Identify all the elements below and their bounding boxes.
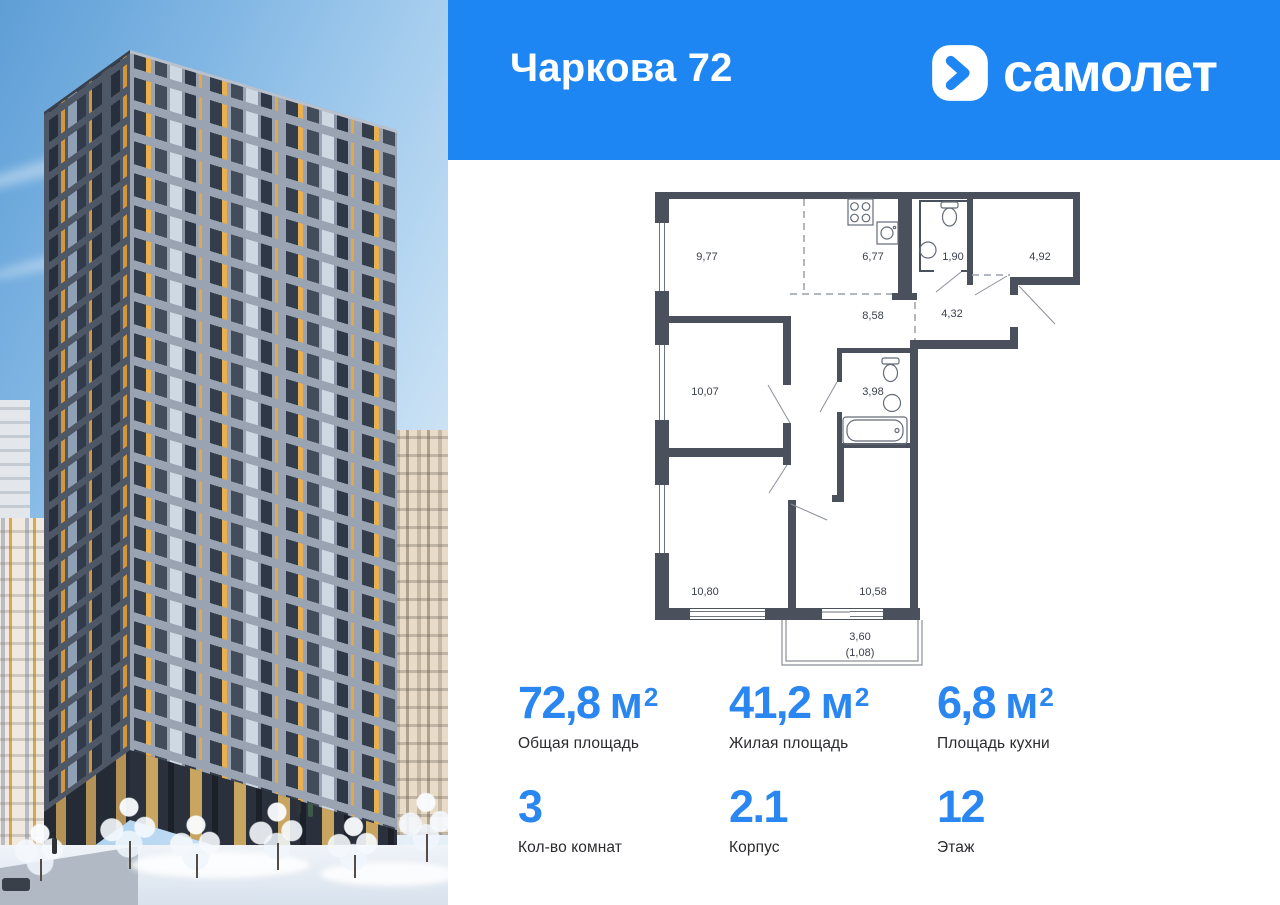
kitchen-sink-icon: [877, 222, 898, 244]
plan-windows: [657, 223, 883, 619]
stat-value: 3: [518, 784, 728, 829]
balcony-area-label: 3,60: [849, 631, 870, 643]
stat-label: Общая площадь: [518, 735, 728, 753]
stat-label: Кол-во комнат: [518, 839, 728, 857]
snowy-tree: [326, 814, 381, 884]
background-building: [388, 430, 448, 835]
building-photo: [0, 0, 448, 905]
stat-rooms-count: 3 Кол-во комнат: [518, 784, 728, 857]
room-area-label: 4,32: [941, 308, 962, 320]
room-area-label: 8,58: [862, 310, 883, 322]
stat-floor: 12 Этаж: [937, 784, 1147, 857]
snowy-tree: [14, 822, 66, 886]
pedestrian: [308, 803, 313, 817]
room-area-label: 10,58: [859, 586, 887, 598]
stat-label: Этаж: [937, 839, 1147, 857]
snowy-tree: [168, 812, 224, 884]
stat-label: Жилая площадь: [729, 735, 939, 753]
stat-value: 2.1: [729, 784, 939, 829]
pedestrian: [52, 838, 57, 854]
room-area-label: 10,07: [691, 386, 719, 398]
sink-icon: [920, 242, 936, 258]
stat-building: 2.1 Корпус: [729, 784, 939, 857]
room-area-label: 3,98: [862, 386, 883, 398]
room-area-label: 9,77: [696, 251, 717, 263]
stat-label: Площадь кухни: [937, 735, 1147, 753]
brand-name: самолет: [1003, 42, 1217, 104]
stat-total-area: 72,8м2 Общая площадь: [518, 680, 728, 753]
room-area-label: 4,92: [1029, 251, 1050, 263]
room-area-label: 1,90: [942, 251, 963, 263]
toilet-icon: [941, 202, 958, 208]
stat-living-area: 41,2м2 Жилая площадь: [729, 680, 939, 753]
stat-value: 41,2м2: [729, 680, 939, 725]
samolet-logo-icon: [931, 44, 989, 102]
pedestrian: [296, 800, 301, 814]
car: [2, 878, 30, 891]
stat-label: Корпус: [729, 839, 939, 857]
tower-side-facade: [44, 50, 130, 874]
stat-value: 6,8м2: [937, 680, 1147, 725]
stat-kitchen-area: 6,8м2 Площадь кухни: [937, 680, 1147, 753]
stat-value: 72,8м2: [518, 680, 728, 725]
room-area-label: 10,80: [691, 586, 719, 598]
stat-value: 12: [937, 784, 1147, 829]
header-banner: Чаркова 72 самолет: [448, 0, 1280, 160]
snowy-tree: [396, 788, 448, 868]
sink-icon: [884, 395, 901, 412]
listing-card: Чаркова 72 самолет: [0, 0, 1280, 905]
snowy-tree: [96, 792, 162, 876]
floor-plan: 9,77 6,77 1,90 4,92 8,58 4,32 10,07 3,98…: [655, 188, 1085, 670]
project-title: Чаркова 72: [510, 46, 733, 90]
balcony-area-reduced-label: (1,08): [846, 647, 875, 659]
room-area-label: 6,77: [862, 251, 883, 263]
toilet-icon: [882, 358, 899, 364]
info-panel: Чаркова 72 самолет: [448, 0, 1280, 905]
brand-logo: самолет: [931, 42, 1217, 104]
